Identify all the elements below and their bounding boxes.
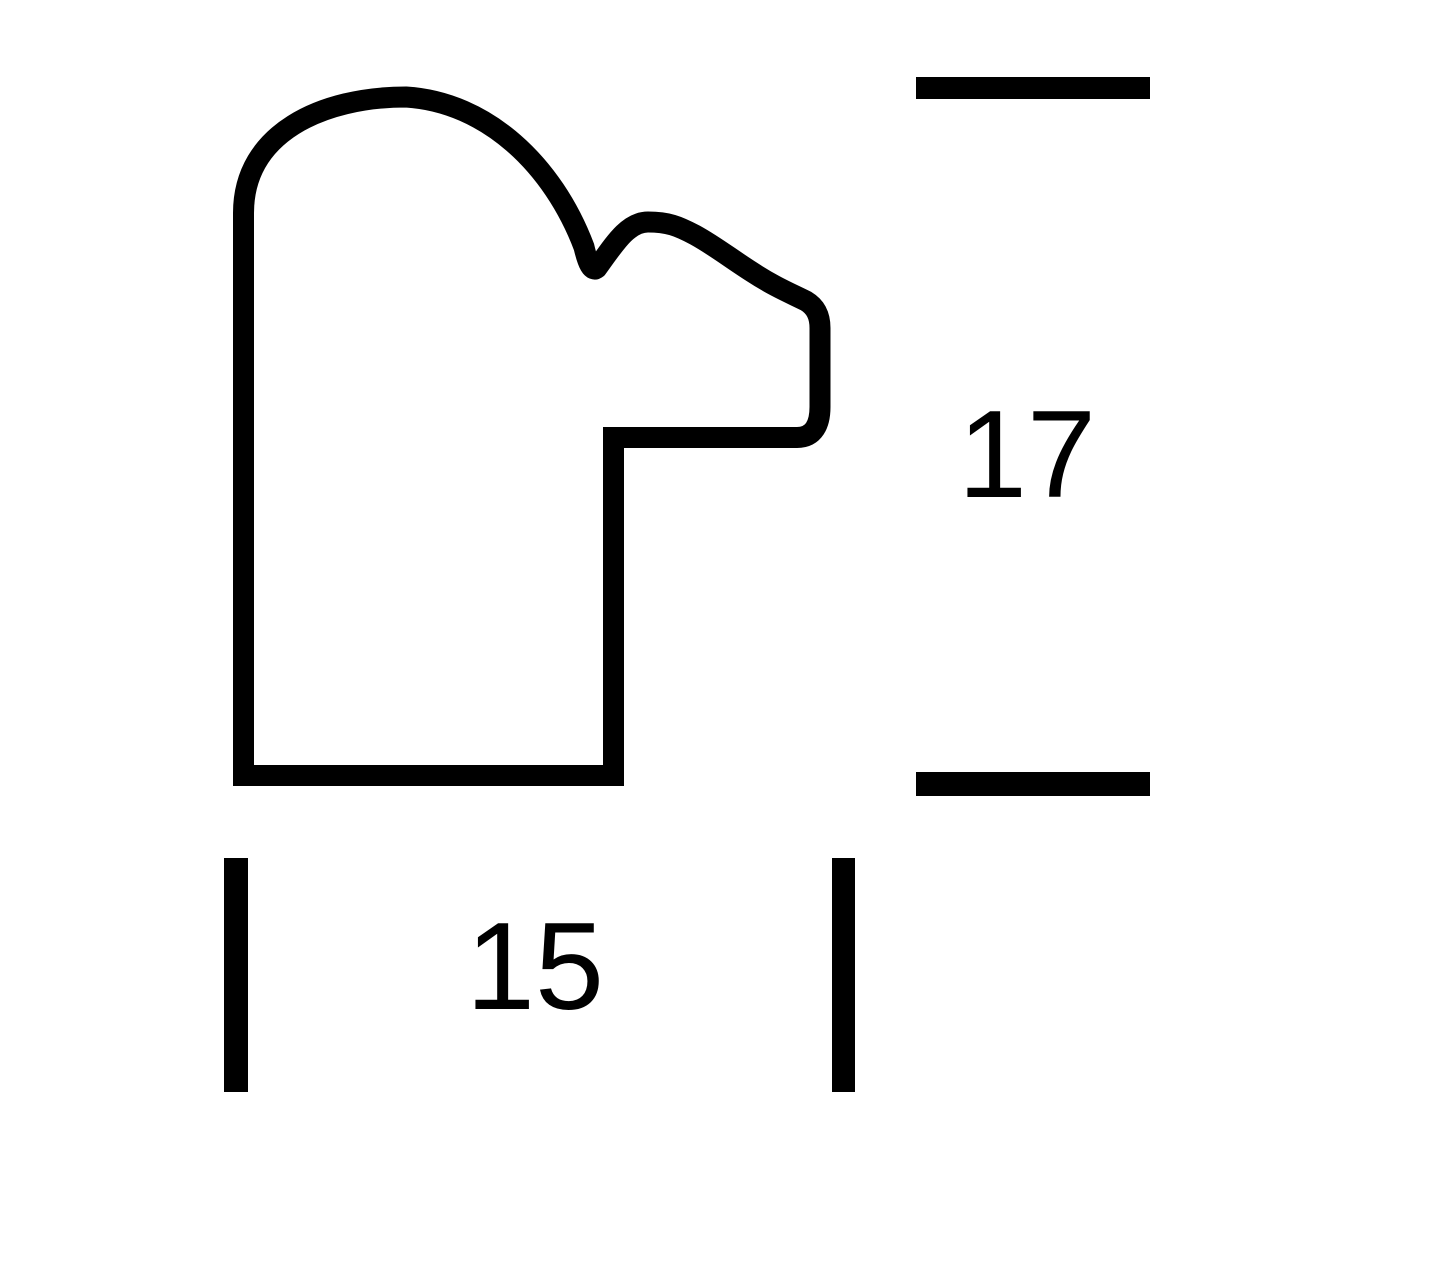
- height-dim-top-bar: [916, 77, 1150, 99]
- width-dim-right-tick: [832, 858, 855, 1092]
- height-dim-bottom-bar: [916, 772, 1150, 796]
- moulding-profile-path: [244, 97, 821, 776]
- height-dim-label: 17: [958, 393, 1096, 517]
- width-dim-label: 15: [466, 905, 604, 1029]
- profile-outline-svg: [0, 0, 1456, 1280]
- width-dim-left-tick: [224, 858, 248, 1092]
- moulding-profile-diagram: 17 15: [0, 0, 1456, 1280]
